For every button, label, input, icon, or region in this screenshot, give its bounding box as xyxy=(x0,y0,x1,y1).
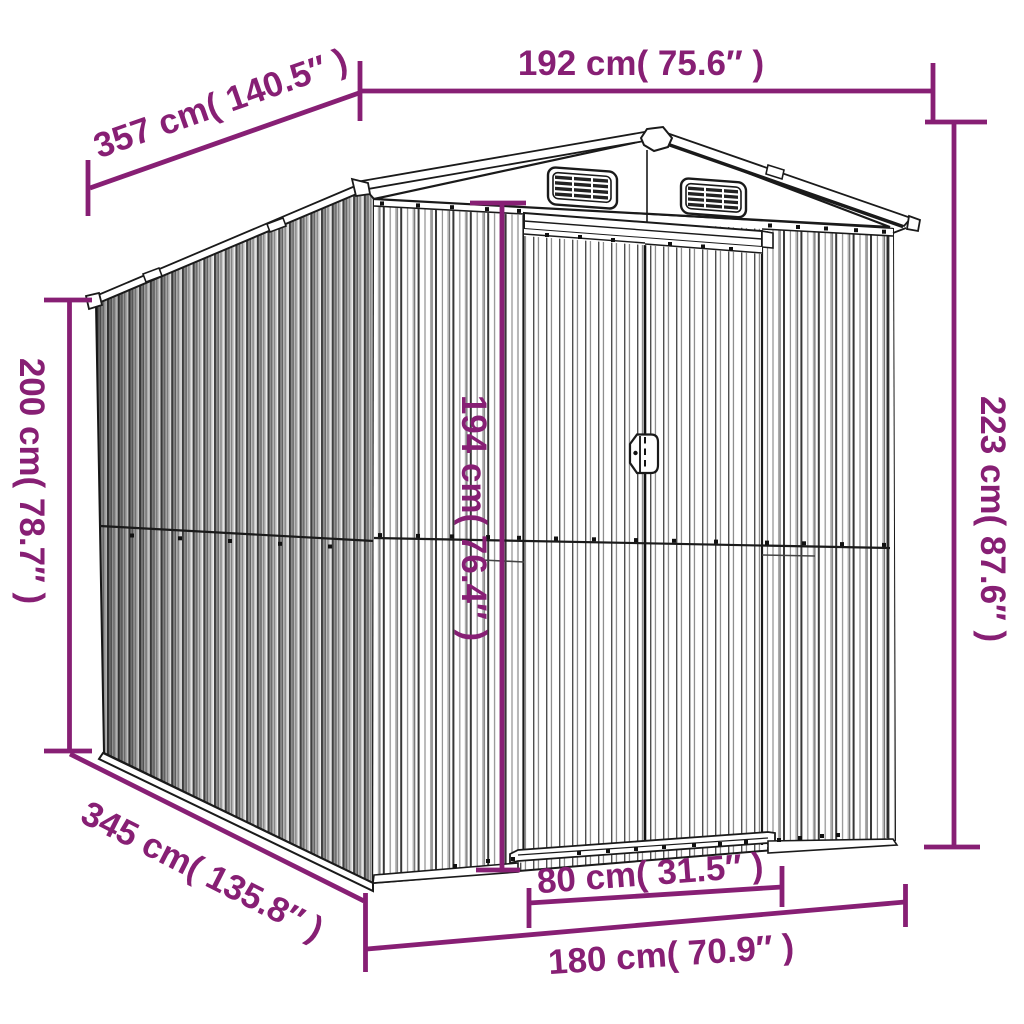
svg-text:357 cm( 140.5″ ): 357 cm( 140.5″ ) xyxy=(89,41,353,166)
svg-text:192 cm( 75.6″ ): 192 cm( 75.6″ ) xyxy=(518,44,764,83)
svg-text:180 cm( 70.9″ ): 180 cm( 70.9″ ) xyxy=(547,927,795,982)
svg-text:223 cm( 87.6″ ): 223 cm( 87.6″ ) xyxy=(973,396,1012,642)
svg-text:200 cm( 78.7″ ): 200 cm( 78.7″ ) xyxy=(12,358,51,604)
svg-text:194 cm( 76.4″ ): 194 cm( 76.4″ ) xyxy=(454,395,493,641)
